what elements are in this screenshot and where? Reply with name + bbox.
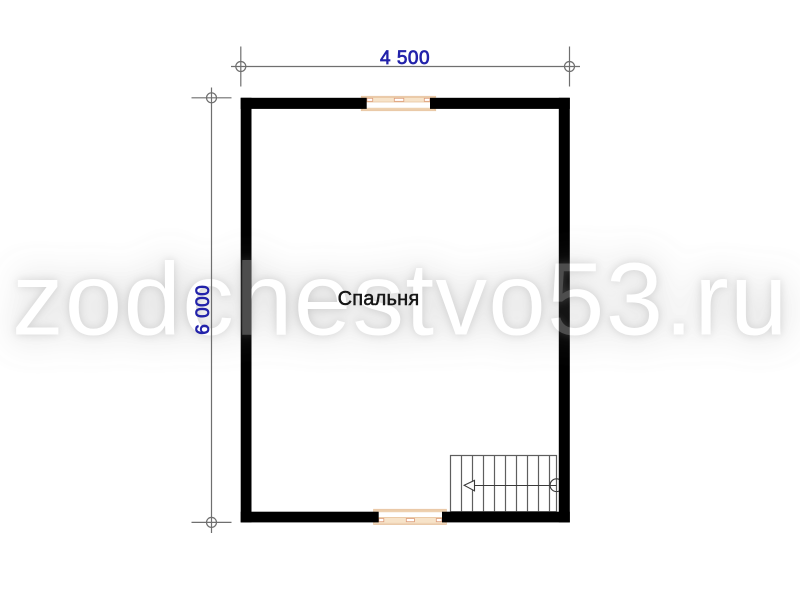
svg-text:Спальня: Спальня: [338, 288, 420, 310]
svg-text:4 500: 4 500: [380, 48, 430, 69]
svg-text:6 000: 6 000: [193, 285, 214, 335]
